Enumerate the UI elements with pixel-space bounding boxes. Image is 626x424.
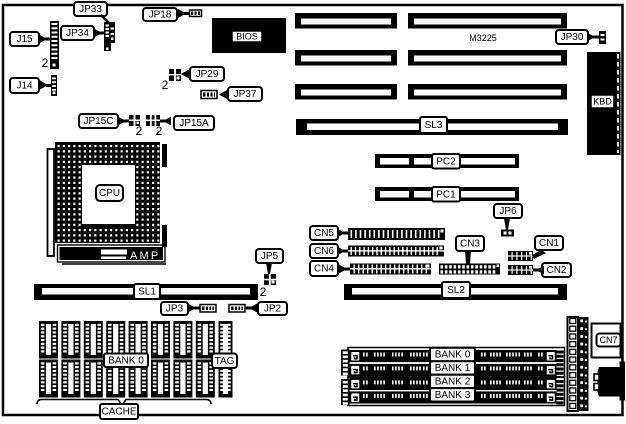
svg-text:JP34: JP34 xyxy=(66,28,89,39)
svg-text:JP37: JP37 xyxy=(234,89,257,100)
svg-text:2: 2 xyxy=(42,56,49,70)
svg-text:PC2: PC2 xyxy=(436,156,456,167)
svg-text:BANK 3: BANK 3 xyxy=(435,390,471,401)
svg-text:J14: J14 xyxy=(16,81,33,92)
svg-text:PC1: PC1 xyxy=(436,189,456,200)
svg-text:CN6: CN6 xyxy=(314,246,334,257)
svg-text:KBD: KBD xyxy=(593,96,612,106)
svg-text:BANK 2: BANK 2 xyxy=(435,377,471,388)
svg-text:J15: J15 xyxy=(16,34,33,45)
svg-text:JP29: JP29 xyxy=(196,69,219,80)
svg-text:CN4: CN4 xyxy=(314,264,334,275)
svg-text:2: 2 xyxy=(136,124,143,138)
svg-text:BANK 0: BANK 0 xyxy=(108,355,144,366)
svg-text:CACHE: CACHE xyxy=(101,407,136,418)
svg-text:CN5: CN5 xyxy=(314,228,334,239)
svg-text:SL2: SL2 xyxy=(447,285,465,296)
svg-text:CN1: CN1 xyxy=(539,238,559,249)
svg-text:CN2: CN2 xyxy=(546,265,566,276)
svg-text:JP30: JP30 xyxy=(561,32,584,43)
svg-text:BIOS: BIOS xyxy=(236,31,258,41)
svg-text:CN7: CN7 xyxy=(599,335,617,345)
svg-text:TAG: TAG xyxy=(215,356,235,367)
svg-text:JP18: JP18 xyxy=(149,10,172,21)
svg-text:SL1: SL1 xyxy=(138,287,156,298)
svg-text:CN3: CN3 xyxy=(460,239,480,250)
svg-text:JP2: JP2 xyxy=(264,304,282,315)
svg-text:2: 2 xyxy=(162,78,169,92)
svg-text:JP6: JP6 xyxy=(499,206,517,217)
svg-text:2: 2 xyxy=(156,124,163,138)
svg-text:CPU: CPU xyxy=(99,188,120,199)
svg-text:SL3: SL3 xyxy=(425,120,443,131)
svg-text:BANK 1: BANK 1 xyxy=(435,363,471,374)
svg-text:JP5: JP5 xyxy=(261,251,279,262)
svg-text:JP3: JP3 xyxy=(166,304,184,315)
svg-text:JP33: JP33 xyxy=(79,4,102,15)
svg-text:AMP: AMP xyxy=(130,250,160,262)
svg-text:2: 2 xyxy=(260,285,267,299)
svg-text:M3225: M3225 xyxy=(469,33,497,43)
svg-text:JP15A: JP15A xyxy=(179,118,209,129)
svg-text:BANK 0: BANK 0 xyxy=(435,350,471,361)
svg-text:JP15C: JP15C xyxy=(83,116,113,127)
